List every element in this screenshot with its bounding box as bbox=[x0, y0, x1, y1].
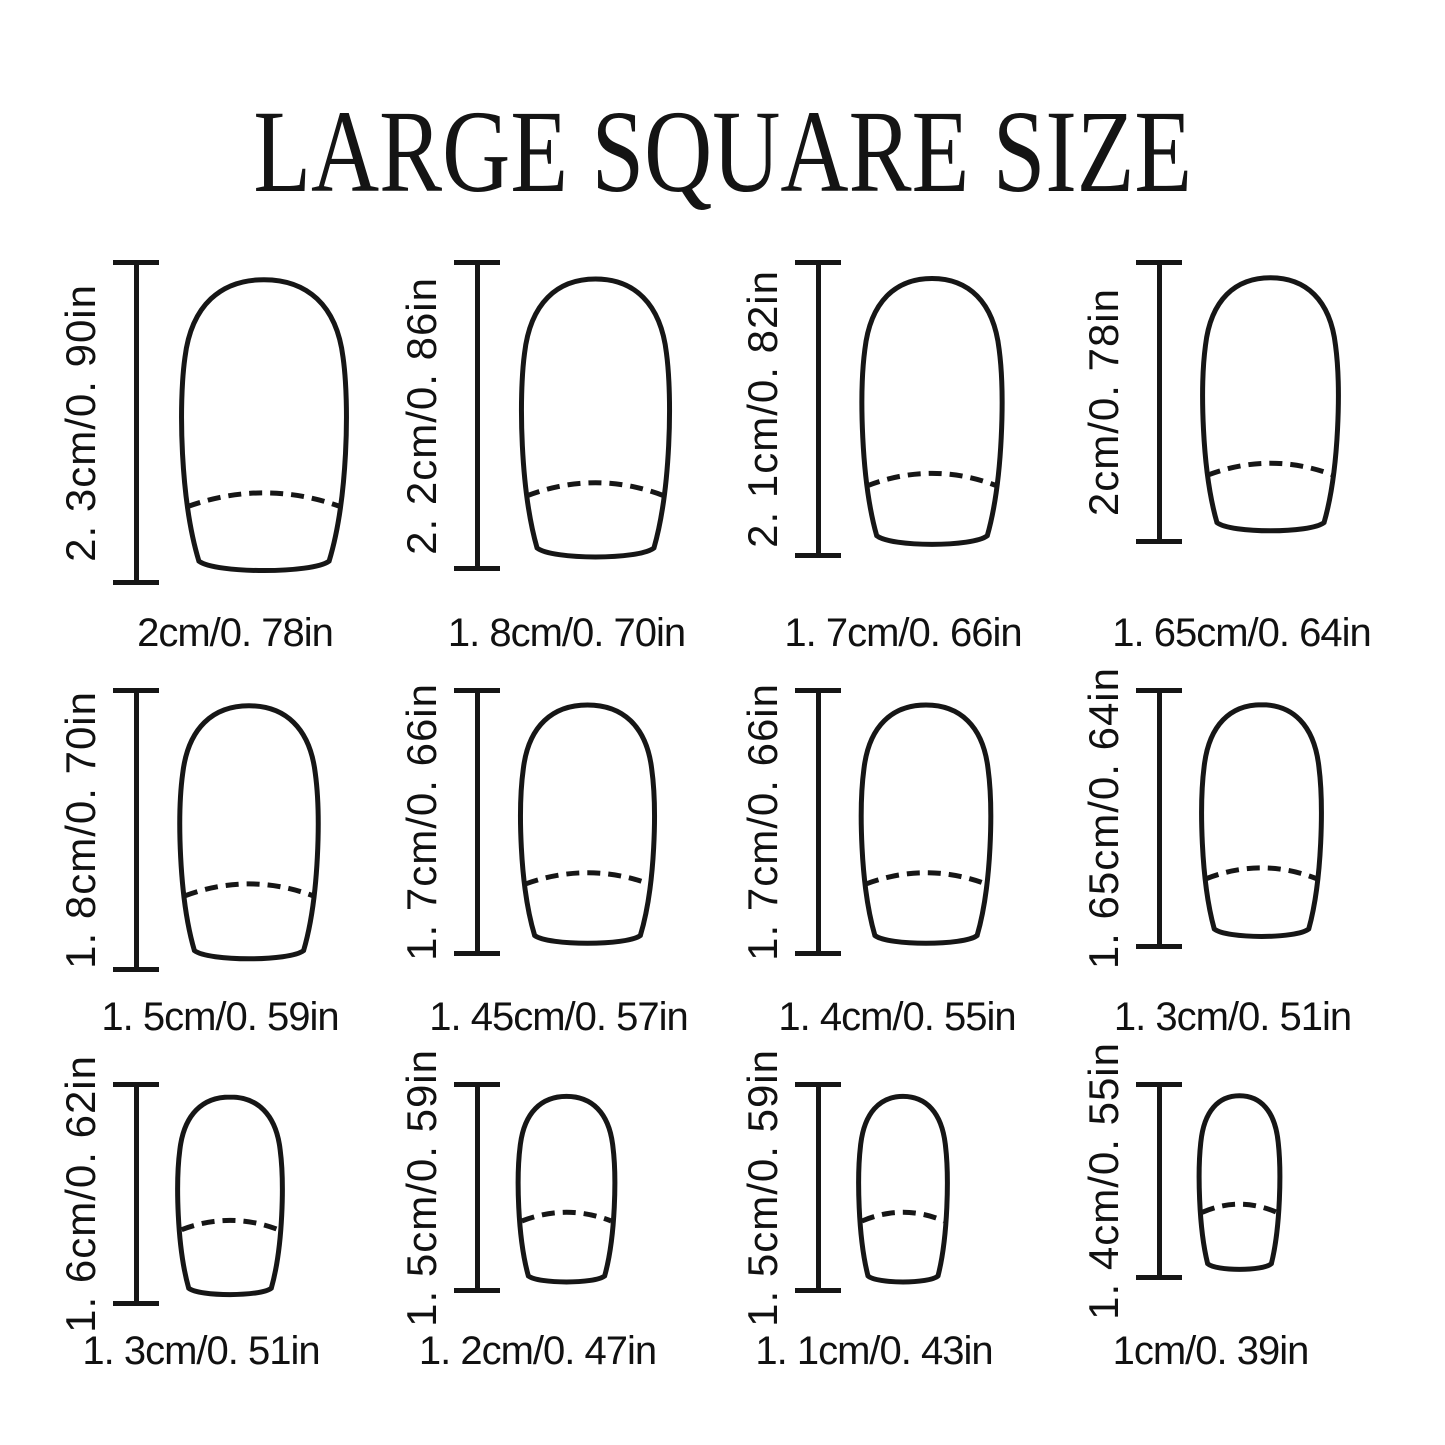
nail-outline-icon bbox=[1194, 265, 1347, 539]
length-label: 1. 7cm/0. 66in bbox=[398, 683, 446, 961]
width-label: 1. 4cm/0. 55in bbox=[778, 995, 1015, 1040]
nail-outline-icon bbox=[171, 265, 357, 580]
measure-stem-icon bbox=[134, 260, 139, 585]
measure-stem-icon bbox=[1157, 688, 1162, 949]
measure-stem-icon bbox=[475, 260, 480, 571]
nail-size-cell: 1. 8cm/0. 70in 1. 5cm/0. 59in bbox=[59, 688, 327, 1040]
width-label: 1. 3cm/0. 51in bbox=[1114, 995, 1351, 1040]
length-measure-line-icon bbox=[1136, 688, 1182, 949]
measure-bottom-tick-icon bbox=[795, 1288, 841, 1293]
nail-outline-icon bbox=[512, 693, 663, 951]
measure-bottom-tick-icon bbox=[1136, 539, 1182, 544]
nail-outline-icon bbox=[1194, 1087, 1285, 1275]
nail-size-chart: LARGE SQUARE SIZE 2. 3cm/0. 90in 2cm/0. … bbox=[0, 0, 1445, 1445]
nail-outline-icon bbox=[171, 693, 327, 967]
length-measure-line-icon bbox=[795, 688, 841, 956]
measurement-group: 2. 2cm/0. 86in bbox=[400, 260, 679, 571]
width-label: 1. 45cm/0. 57in bbox=[429, 995, 688, 1040]
measure-stem-icon bbox=[1157, 1082, 1162, 1280]
measure-bottom-tick-icon bbox=[454, 566, 500, 571]
measurement-group: 1. 6cm/0. 62in bbox=[59, 1082, 289, 1306]
width-label: 1. 65cm/0. 64in bbox=[1112, 611, 1371, 656]
measure-stem-icon bbox=[475, 1082, 480, 1293]
length-measure-line-icon bbox=[1136, 260, 1182, 544]
width-label: 1. 7cm/0. 66in bbox=[784, 611, 1021, 656]
measure-bottom-tick-icon bbox=[454, 951, 500, 956]
measure-bottom-tick-icon bbox=[795, 553, 841, 558]
measure-bottom-tick-icon bbox=[113, 1301, 159, 1306]
nail-size-cell: 1. 5cm/0. 59in 1. 1cm/0. 43in bbox=[741, 1082, 953, 1374]
measurement-group: 1. 65cm/0. 64in bbox=[1082, 688, 1329, 949]
length-label: 1. 4cm/0. 55in bbox=[1080, 1042, 1128, 1320]
length-label: 2. 1cm/0. 82in bbox=[739, 270, 787, 548]
measure-bottom-tick-icon bbox=[113, 967, 159, 972]
nail-size-cell: 2. 3cm/0. 90in 2cm/0. 78in bbox=[59, 260, 357, 656]
nail-outline-icon bbox=[512, 265, 679, 566]
length-measure-line-icon bbox=[113, 1082, 159, 1306]
measure-bottom-tick-icon bbox=[1136, 944, 1182, 949]
width-label: 2cm/0. 78in bbox=[137, 611, 333, 656]
title-bar: LARGE SQUARE SIZE bbox=[0, 84, 1445, 220]
length-measure-line-icon bbox=[113, 260, 159, 585]
measure-bottom-tick-icon bbox=[113, 580, 159, 585]
nail-size-cell: 1. 65cm/0. 64in 1. 3cm/0. 51in bbox=[1082, 688, 1329, 1040]
length-label: 1. 5cm/0. 59in bbox=[739, 1049, 787, 1327]
measurement-group: 2cm/0. 78in bbox=[1082, 260, 1347, 544]
measurement-group: 2. 1cm/0. 82in bbox=[741, 260, 1011, 558]
nail-size-cell: 1. 7cm/0. 66in 1. 45cm/0. 57in bbox=[400, 688, 663, 1040]
nail-outline-icon bbox=[1194, 693, 1329, 944]
measure-bottom-tick-icon bbox=[795, 951, 841, 956]
length-measure-line-icon bbox=[1136, 1082, 1182, 1280]
width-label: 1cm/0. 39in bbox=[1113, 1329, 1309, 1374]
measurement-group: 1. 5cm/0. 59in bbox=[741, 1082, 953, 1293]
nail-size-cell: 1. 7cm/0. 66in 1. 4cm/0. 55in bbox=[741, 688, 999, 1040]
length-measure-line-icon bbox=[454, 260, 500, 571]
nail-size-cell: 1. 4cm/0. 55in 1cm/0. 39in bbox=[1082, 1082, 1285, 1374]
measure-stem-icon bbox=[816, 688, 821, 956]
measurement-group: 1. 5cm/0. 59in bbox=[400, 1082, 621, 1293]
width-label: 1. 3cm/0. 51in bbox=[82, 1329, 319, 1374]
width-label: 1. 2cm/0. 47in bbox=[419, 1329, 656, 1374]
length-measure-line-icon bbox=[795, 260, 841, 558]
nail-size-cell: 1. 6cm/0. 62in 1. 3cm/0. 51in bbox=[59, 1082, 289, 1374]
measure-bottom-tick-icon bbox=[454, 1288, 500, 1293]
measurement-group: 1. 4cm/0. 55in bbox=[1082, 1082, 1285, 1280]
nail-size-cell: 1. 5cm/0. 59in 1. 2cm/0. 47in bbox=[400, 1082, 621, 1374]
measurement-group: 1. 7cm/0. 66in bbox=[741, 688, 999, 956]
measure-stem-icon bbox=[816, 1082, 821, 1293]
length-measure-line-icon bbox=[795, 1082, 841, 1293]
length-label: 1. 8cm/0. 70in bbox=[57, 691, 105, 969]
nail-outline-icon bbox=[512, 1087, 621, 1288]
nail-outline-icon bbox=[853, 265, 1011, 553]
length-label: 1. 5cm/0. 59in bbox=[398, 1049, 446, 1327]
width-label: 1. 1cm/0. 43in bbox=[755, 1329, 992, 1374]
measure-bottom-tick-icon bbox=[1136, 1275, 1182, 1280]
length-measure-line-icon bbox=[454, 1082, 500, 1293]
length-label: 2cm/0. 78in bbox=[1080, 288, 1128, 516]
width-label: 1. 5cm/0. 59in bbox=[101, 995, 338, 1040]
width-label: 1. 8cm/0. 70in bbox=[448, 611, 685, 656]
nail-size-cell: 2. 2cm/0. 86in 1. 8cm/0. 70in bbox=[400, 260, 679, 656]
measurement-group: 1. 8cm/0. 70in bbox=[59, 688, 327, 972]
measure-stem-icon bbox=[816, 260, 821, 558]
page-title: LARGE SQUARE SIZE bbox=[253, 84, 1192, 220]
nail-size-cell: 2cm/0. 78in 1. 65cm/0. 64in bbox=[1082, 260, 1347, 656]
measure-stem-icon bbox=[475, 688, 480, 956]
measure-stem-icon bbox=[134, 688, 139, 972]
measurement-group: 2. 3cm/0. 90in bbox=[59, 260, 357, 585]
length-measure-line-icon bbox=[113, 688, 159, 972]
length-label: 1. 65cm/0. 64in bbox=[1080, 667, 1128, 969]
length-label: 1. 6cm/0. 62in bbox=[57, 1055, 105, 1333]
nail-outline-icon bbox=[853, 693, 999, 951]
nail-outline-icon bbox=[853, 1087, 953, 1288]
nail-size-cell: 2. 1cm/0. 82in 1. 7cm/0. 66in bbox=[741, 260, 1011, 656]
length-measure-line-icon bbox=[454, 688, 500, 956]
measure-stem-icon bbox=[134, 1082, 139, 1306]
length-label: 1. 7cm/0. 66in bbox=[739, 683, 787, 961]
measurement-group: 1. 7cm/0. 66in bbox=[400, 688, 663, 956]
length-label: 2. 2cm/0. 86in bbox=[398, 277, 446, 555]
measure-stem-icon bbox=[1157, 260, 1162, 544]
nail-outline-icon bbox=[171, 1087, 289, 1301]
length-label: 2. 3cm/0. 90in bbox=[57, 284, 105, 562]
